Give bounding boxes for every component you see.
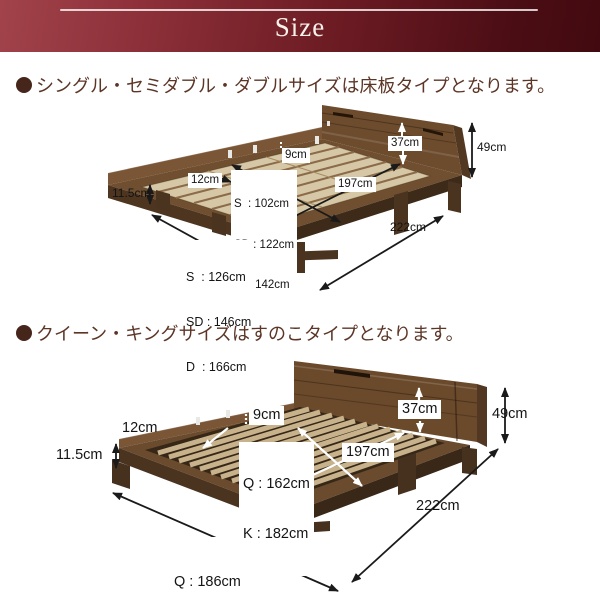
bed1-ledge-width-label: 12cm	[188, 173, 222, 188]
bed2-total-length-label: 222cm	[416, 498, 460, 515]
bed1-headboard-total-height-label: 49cm	[477, 141, 506, 155]
bed2-total-width-table: Q : 186cm K : 206cm	[172, 537, 243, 600]
bed1-rim-height-label: 9cm	[282, 148, 310, 163]
bed2-inner-width-k: K : 182cm	[243, 526, 310, 543]
bed1-inner-length-label: 197cm	[335, 177, 376, 192]
header-divider-line	[60, 9, 538, 11]
section2-note-text: クイーン・キングサイズはすのこタイプとなります。	[36, 320, 464, 346]
bed1-total-length-label: 222cm	[390, 221, 426, 235]
bed1-headboard-inner-height-label: 37cm	[388, 136, 422, 151]
bed2-frame-height-label: 11.5cm	[56, 447, 102, 464]
bed2-headboard-total-height-label: 49cm	[492, 406, 527, 423]
bed2-inner-width-q: Q : 162cm	[243, 476, 310, 493]
header-banner: Size	[0, 0, 600, 52]
bed1-total-width-s: S : 126cm	[186, 270, 251, 285]
bed2-headboard-inner-height-label: 37cm	[398, 400, 441, 419]
bed2-inner-width-table: Q : 162cm K : 182cm	[239, 442, 314, 576]
section2-note: クイーン・キングサイズはすのこタイプとなります。	[16, 320, 464, 346]
bed1-inner-width-s: S : 102cm	[234, 198, 294, 212]
page: Size シングル・セミダブル・ダブルサイズは床板タイプとなります。	[0, 0, 600, 600]
bed1-frame-height-label: 11.5cm	[112, 187, 150, 201]
page-title: Size	[0, 12, 600, 43]
bed2-inner-length-label: 197cm	[342, 443, 394, 462]
bullet-icon	[16, 77, 32, 93]
bed2-rim-height-label: 9cm	[249, 406, 284, 425]
bullet-icon	[16, 325, 32, 341]
bed2-total-width-q: Q : 186cm	[174, 573, 241, 591]
bed2-ledge-width-label: 12cm	[122, 420, 157, 437]
bed1-illustration	[0, 95, 600, 307]
